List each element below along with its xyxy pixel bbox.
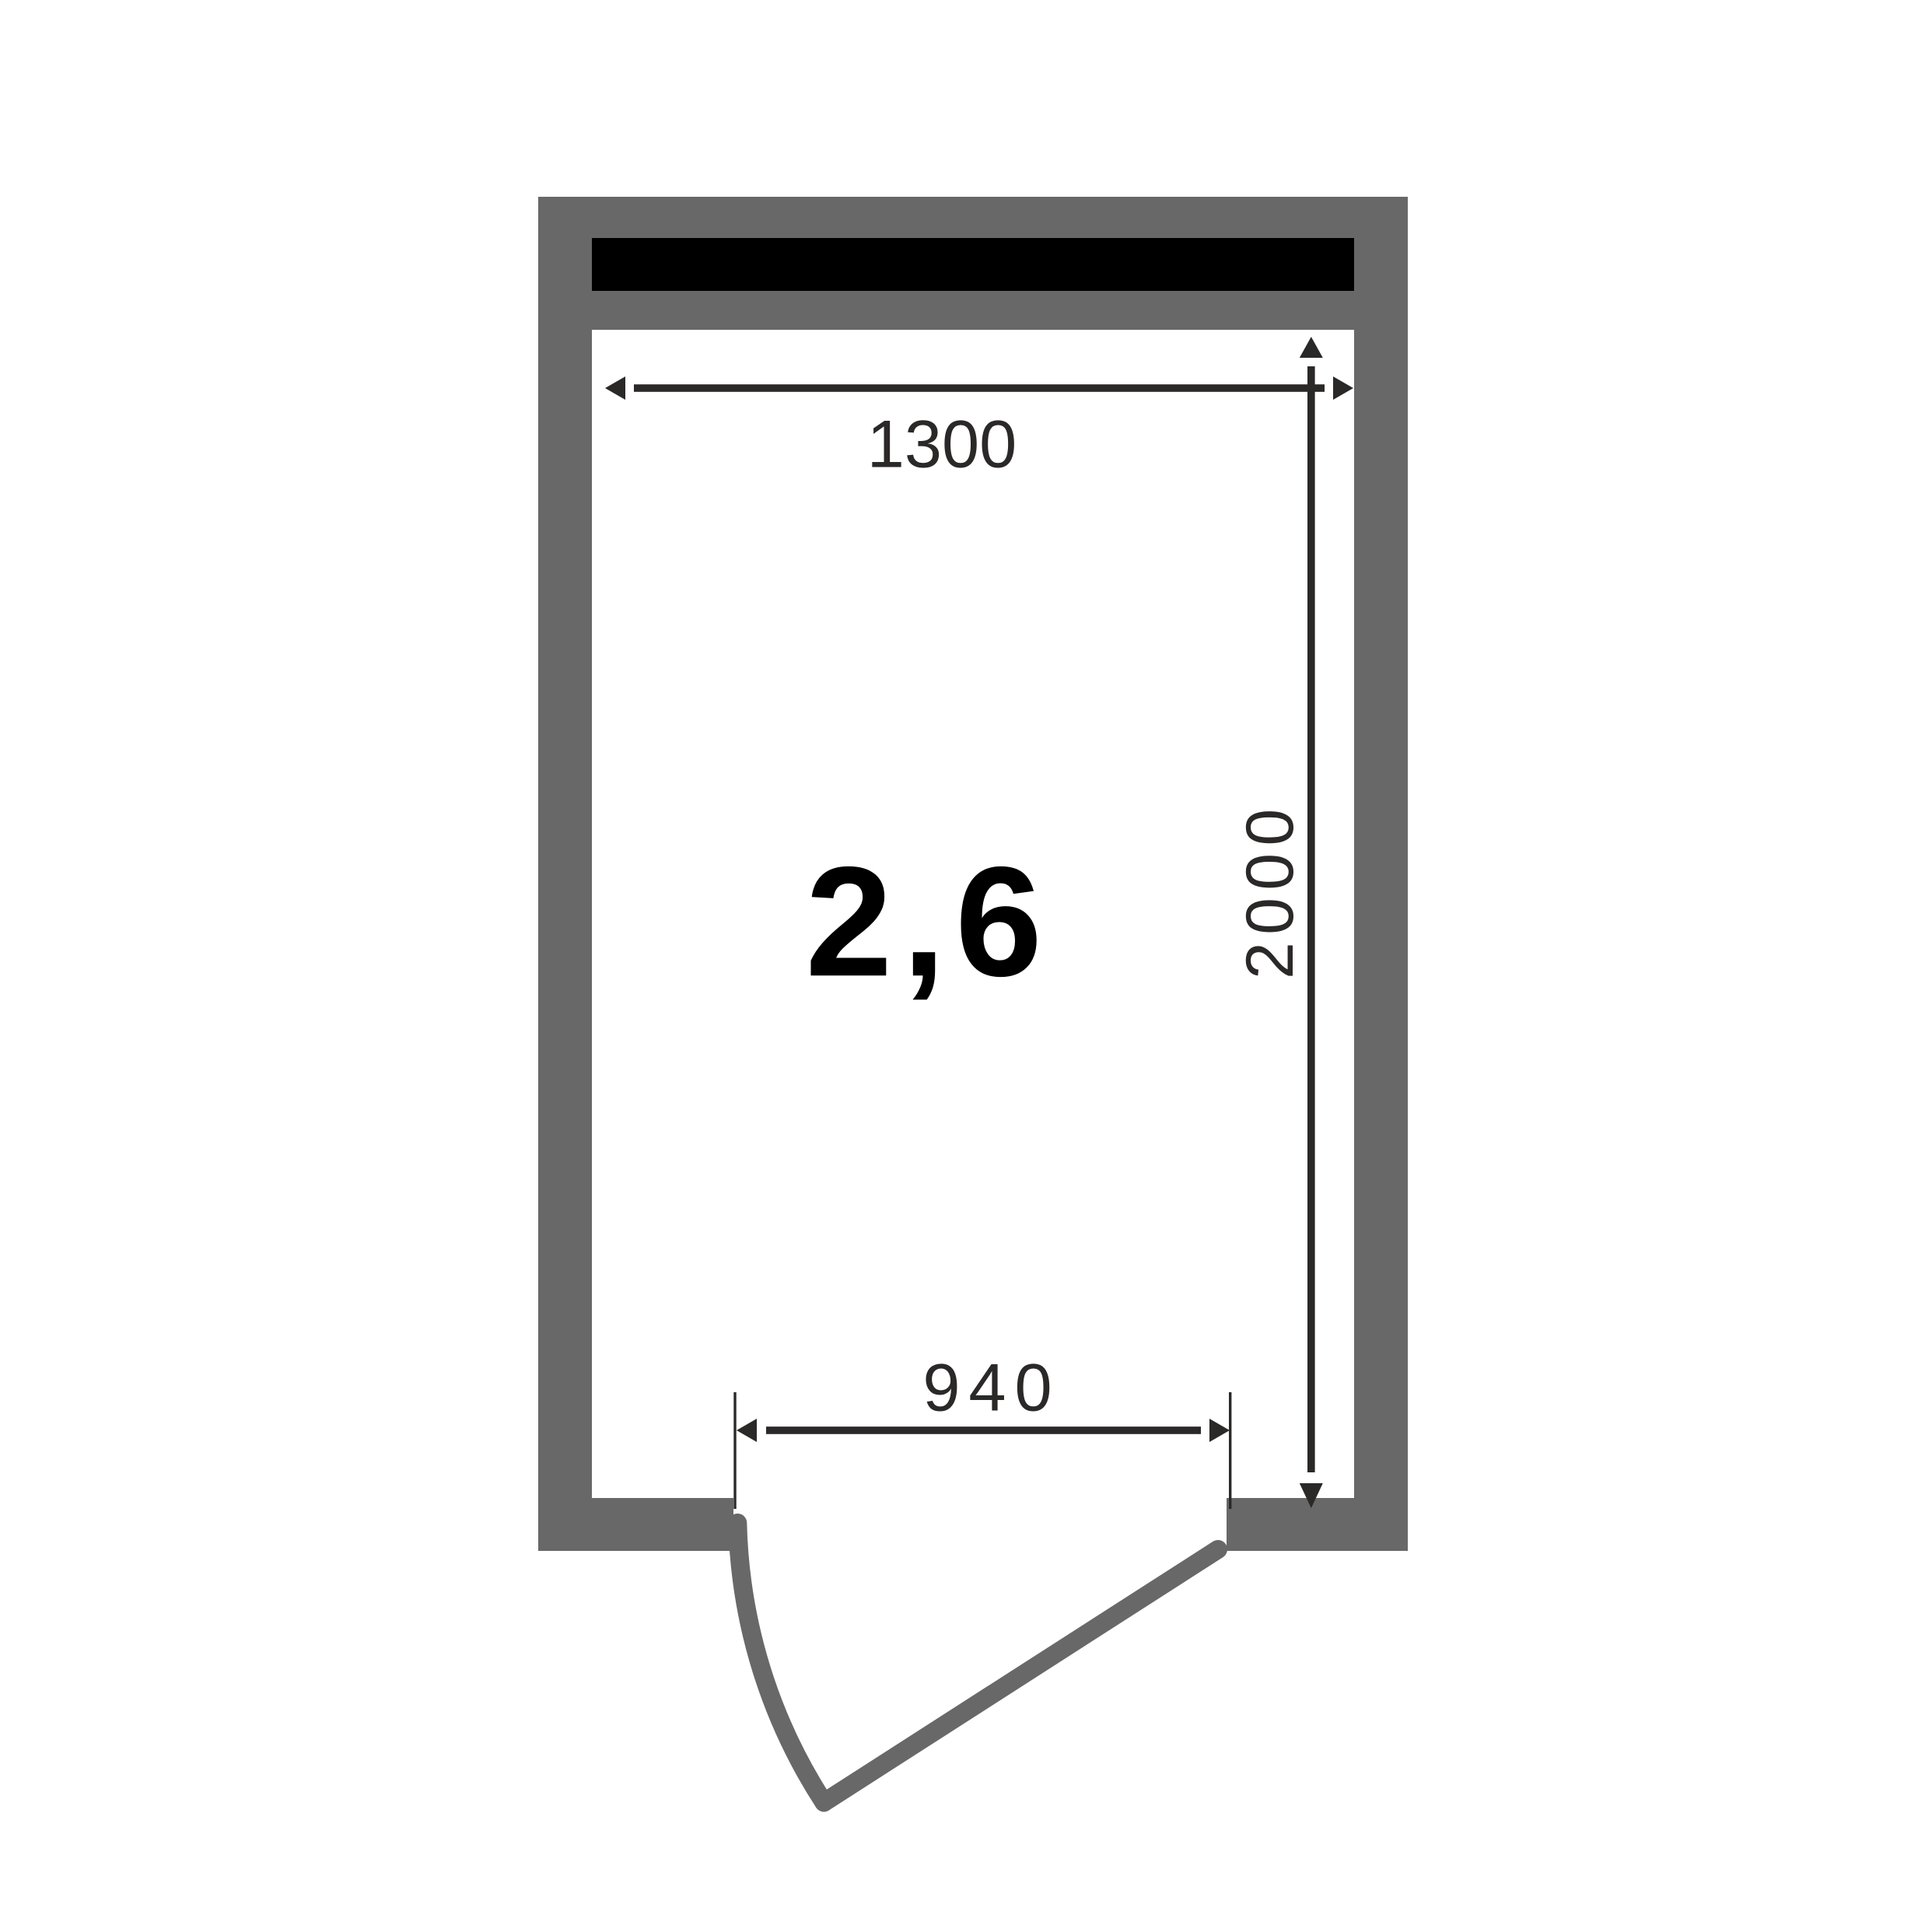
svg-text:2,6: 2,6 (806, 834, 1052, 1009)
svg-text:940: 940 (922, 1350, 1060, 1425)
svg-text:2000: 2000 (1233, 801, 1307, 979)
svg-text:1300: 1300 (867, 408, 1017, 482)
